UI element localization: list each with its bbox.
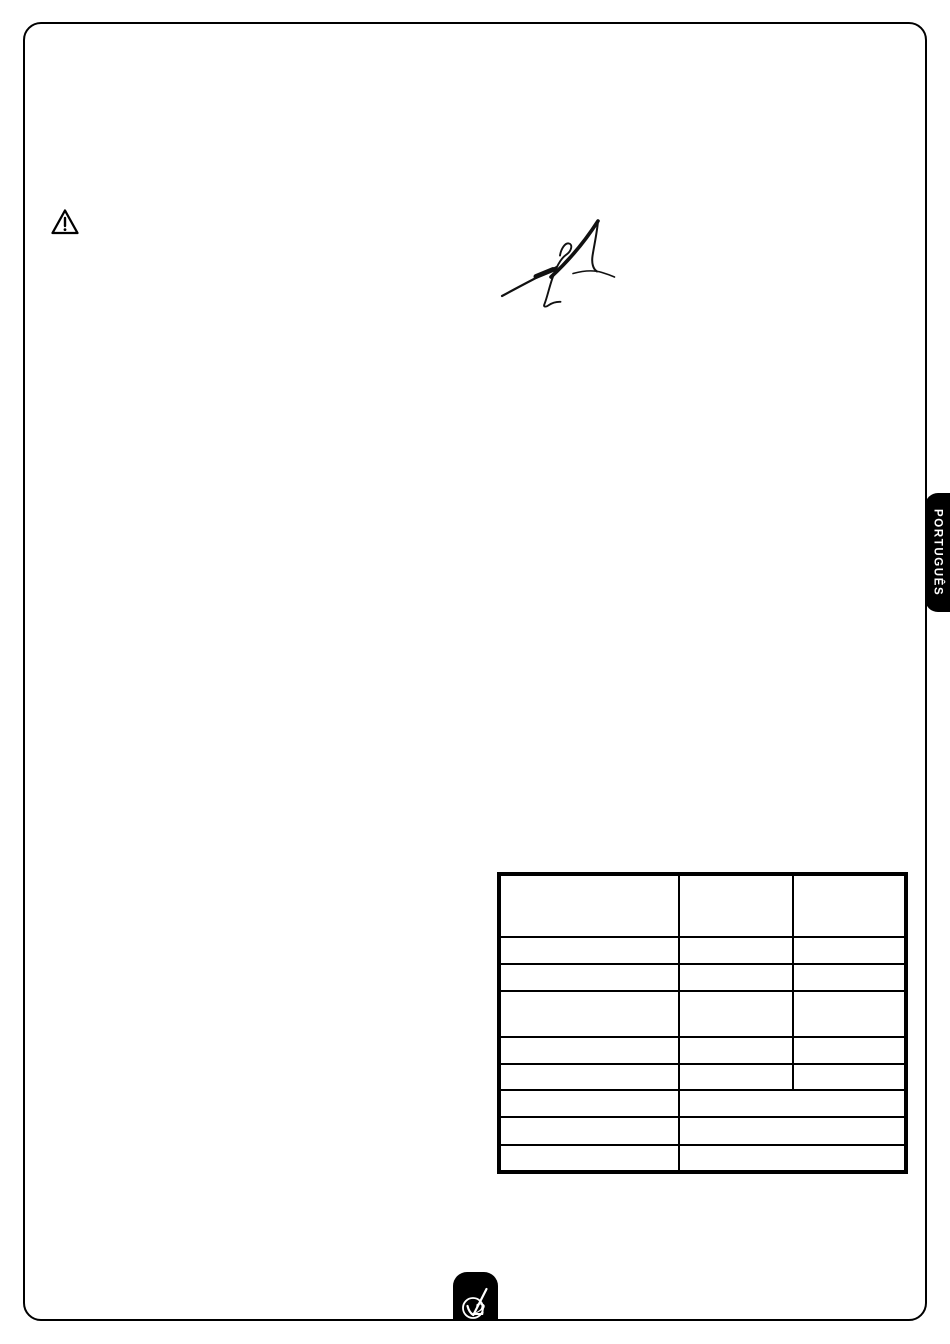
language-section-tab: PORTUGUÊS xyxy=(925,493,950,612)
brand-footer-tab: 2 xyxy=(453,1272,498,1321)
table-cell xyxy=(499,1117,679,1145)
table-row xyxy=(499,964,906,991)
table-cell xyxy=(499,1064,679,1090)
table-cell xyxy=(499,1090,679,1117)
table-cell xyxy=(679,1064,793,1090)
table-row xyxy=(499,1145,906,1172)
table-cell xyxy=(793,874,906,937)
table-cell xyxy=(499,964,679,991)
table-cell xyxy=(679,1037,793,1064)
table-cell xyxy=(793,1037,906,1064)
table-cell xyxy=(679,991,793,1037)
spec-table xyxy=(497,872,908,1174)
table-row xyxy=(499,1064,906,1090)
warning-triangle-icon xyxy=(50,208,80,236)
table-cell-merged xyxy=(679,1117,906,1145)
table-row xyxy=(499,937,906,964)
language-section-tab-label: PORTUGUÊS xyxy=(932,509,944,596)
table-row xyxy=(499,991,906,1037)
table-cell-merged xyxy=(679,1090,906,1117)
table-cell xyxy=(793,937,906,964)
table-row xyxy=(499,1117,906,1145)
table-row xyxy=(499,1090,906,1117)
table-cell xyxy=(499,937,679,964)
manual-page: PORTUGUÊS xyxy=(0,0,950,1344)
table-cell xyxy=(679,964,793,991)
table-cell xyxy=(499,1145,679,1172)
handwritten-signature xyxy=(494,208,626,312)
table-cell xyxy=(499,874,679,937)
table-cell xyxy=(793,991,906,1037)
table-row xyxy=(499,1037,906,1064)
table-cell xyxy=(679,937,793,964)
v2-logo: 2 xyxy=(453,1272,498,1321)
table-cell xyxy=(793,964,906,991)
table-cell xyxy=(499,1037,679,1064)
table-row xyxy=(499,874,906,937)
table-cell-merged xyxy=(679,1145,906,1172)
table-cell xyxy=(679,874,793,937)
table-cell xyxy=(499,991,679,1037)
svg-text:2: 2 xyxy=(474,1300,486,1319)
table-cell xyxy=(793,1064,906,1090)
